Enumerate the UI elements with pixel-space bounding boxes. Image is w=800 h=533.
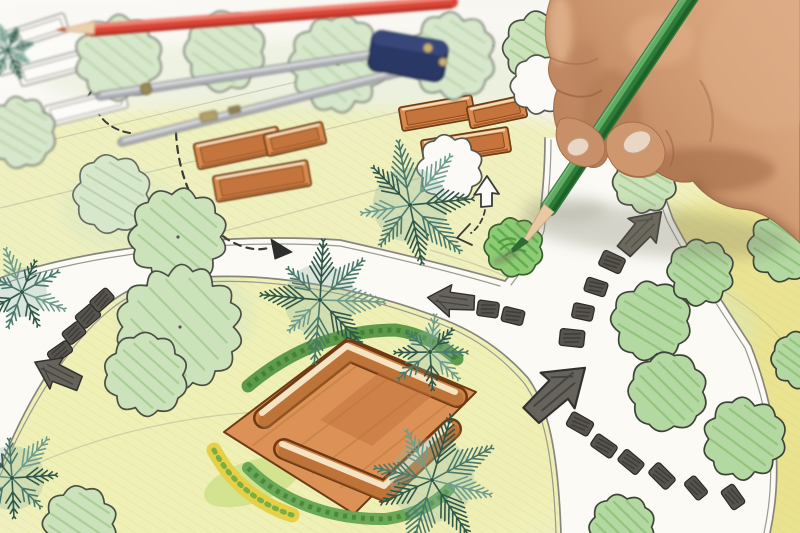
- paving-stone: [476, 300, 499, 318]
- tree: [628, 352, 706, 431]
- compass-knob: [141, 84, 152, 95]
- photo-canvas: [0, 0, 800, 533]
- paving-stone: [559, 328, 585, 347]
- landscape-plan-photo: [0, 0, 800, 533]
